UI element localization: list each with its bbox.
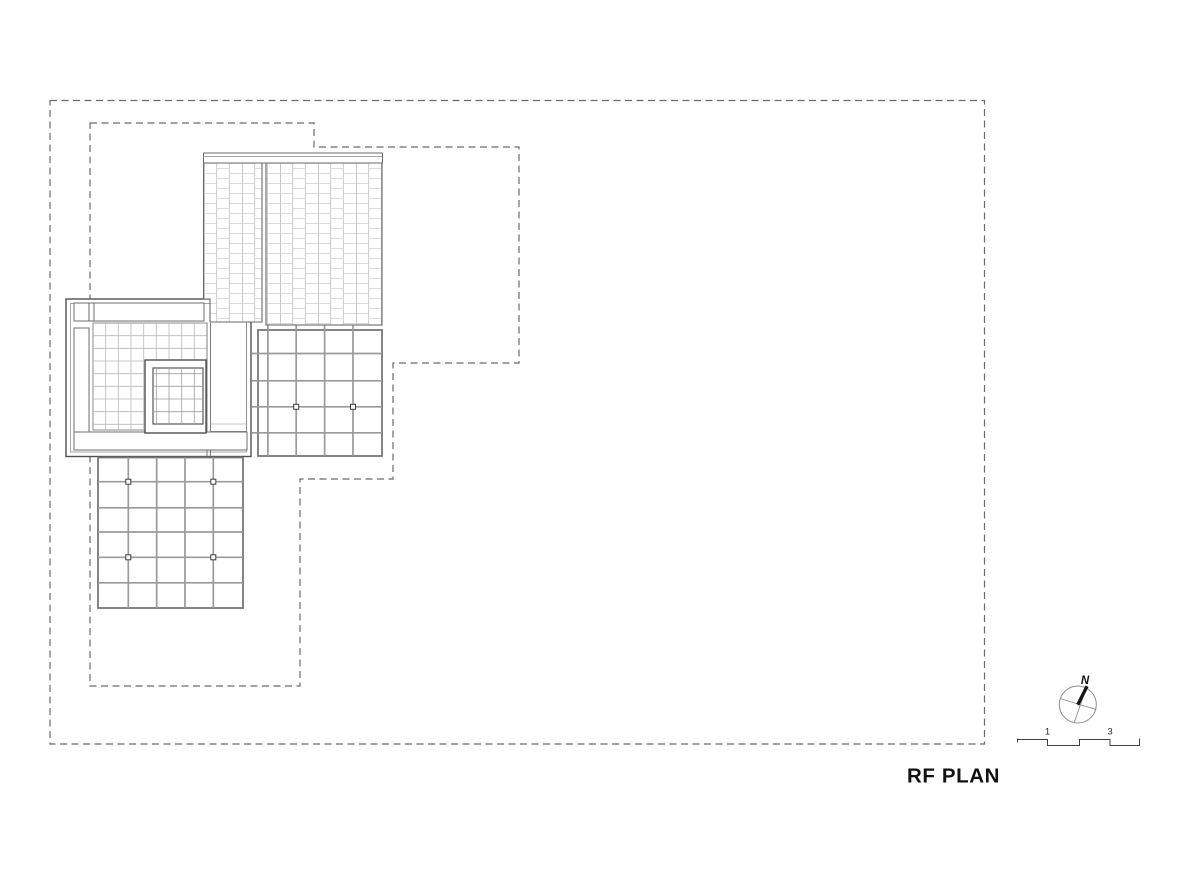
brick-hatched-roofs (204, 153, 383, 325)
roof-plan-sheet: N 1 3 RF PLAN (0, 0, 1200, 882)
joint-marker (211, 479, 216, 484)
scale-bar: 1 3 (1018, 727, 1140, 746)
south-eave-band (74, 432, 247, 450)
scale-tick-label-3: 3 (1107, 727, 1112, 738)
skylight-frame (153, 368, 203, 424)
joint-marker (126, 479, 131, 484)
scale-tick-label-1: 1 (1045, 727, 1050, 738)
north-label: N (1081, 675, 1090, 687)
brick-roof-left (204, 154, 263, 322)
roof-plan-drawing: N 1 3 RF PLAN (0, 0, 1200, 882)
north-arrow-needle (1078, 686, 1087, 705)
scale-bar-line (1018, 739, 1140, 746)
plan-title: RF PLAN (907, 765, 1000, 788)
skylight (145, 360, 206, 433)
joint-marker (211, 555, 216, 560)
north-arrow-icon: N (1059, 675, 1096, 723)
joint-marker (126, 555, 131, 560)
east-grid-border (258, 330, 382, 456)
brick-roof-right (266, 154, 382, 325)
west-pavilion-roof (66, 299, 251, 457)
west-eave-band (74, 328, 89, 432)
east-coffer-grid-roof (252, 326, 382, 457)
joint-marker (294, 404, 299, 409)
ridge-fascia-band (204, 153, 383, 163)
south-coffer-grid-roof (98, 458, 243, 609)
joint-marker (351, 404, 356, 409)
